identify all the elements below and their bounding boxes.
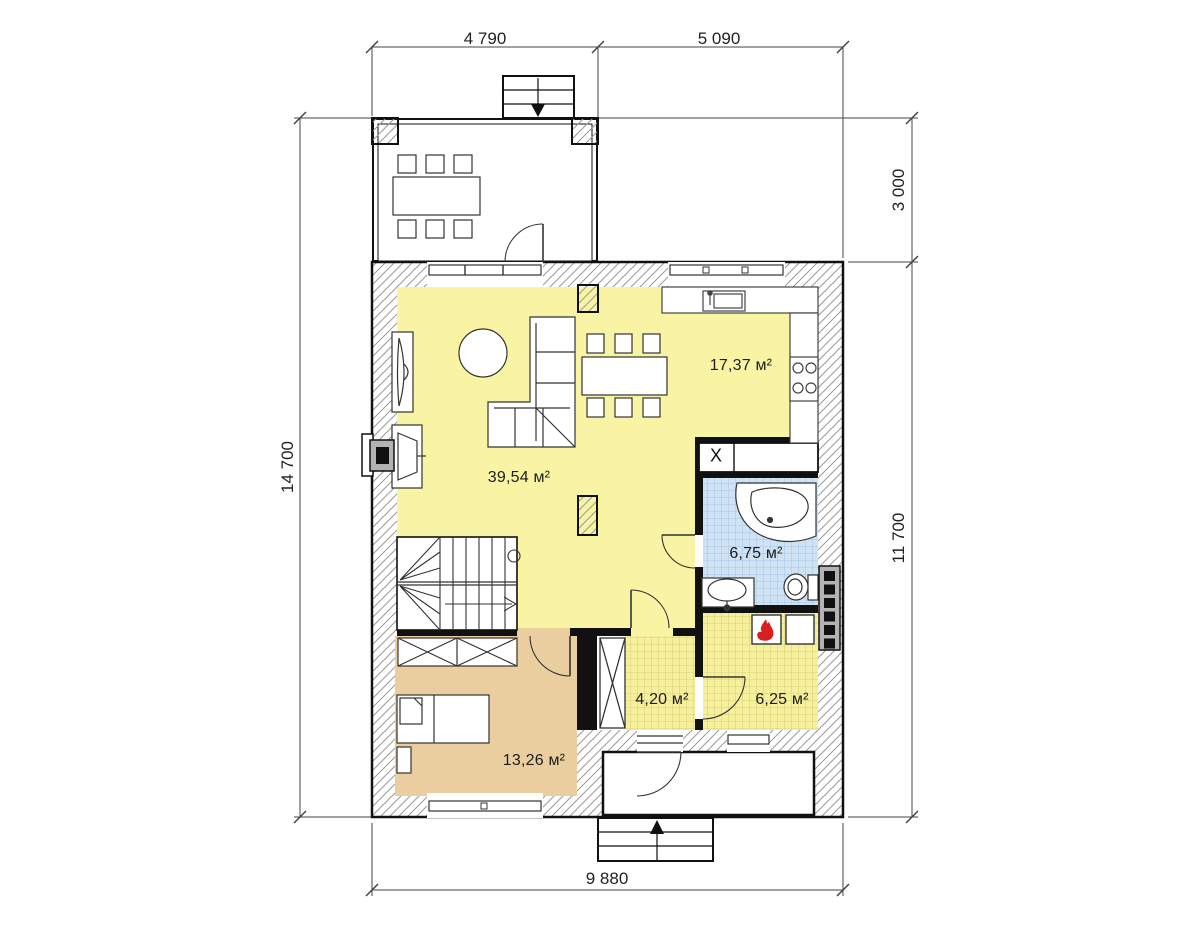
- wall-stub: [578, 285, 598, 312]
- dim-right-bottom: 11 700: [889, 513, 909, 564]
- terrace-table: [393, 177, 480, 215]
- fireplace: [392, 425, 426, 488]
- fireplace-flue: [362, 434, 394, 476]
- dim-right-top: 3 000: [889, 169, 909, 212]
- entry-steps: [598, 818, 713, 861]
- boiler-unit-box: [786, 615, 814, 644]
- boiler-area-label: 6,25 м²: [755, 691, 808, 709]
- terrace-dining-set: [393, 155, 480, 238]
- bathroom-area-label: 6,75 м²: [729, 545, 782, 563]
- floor-plan-drawing: [0, 0, 1200, 926]
- bedroom-window: [427, 793, 543, 818]
- dim-top-right: 5 090: [698, 29, 741, 49]
- column: [578, 496, 597, 535]
- hall-closet: [600, 638, 625, 728]
- kitchen-window: [668, 262, 785, 287]
- tv: [392, 332, 413, 412]
- toilet: [784, 574, 818, 600]
- chimney: [819, 566, 840, 650]
- bedroom-area-label: 13,26 м²: [503, 752, 565, 770]
- floor-plan-page: 4 790 5 090 3 000 11 700 14 700 9 880 17…: [0, 0, 1200, 926]
- terrace: [372, 76, 598, 261]
- boiler-window: [727, 730, 770, 752]
- dining-table: [582, 357, 667, 395]
- terrace-steps: [503, 76, 574, 118]
- dim-top-left: 4 790: [464, 29, 507, 49]
- wardrobe: [398, 638, 517, 666]
- living-area-label: 39,54 м²: [488, 469, 550, 487]
- nightstand: [397, 747, 411, 773]
- kitchen-area-label: 17,37 м²: [710, 357, 772, 375]
- closet-x-marker: X: [710, 446, 722, 467]
- bathroom-sink: [702, 578, 754, 612]
- terrace-pier-right: [572, 118, 598, 144]
- porch-floor: [603, 752, 814, 815]
- round-table: [459, 329, 507, 377]
- dim-bottom: 9 880: [586, 869, 629, 889]
- terrace-pier-left: [372, 118, 398, 144]
- dim-left: 14 700: [278, 441, 298, 493]
- staircase: [397, 537, 520, 630]
- hallway-area-label: 4,20 м²: [635, 691, 688, 709]
- bed: [397, 695, 489, 743]
